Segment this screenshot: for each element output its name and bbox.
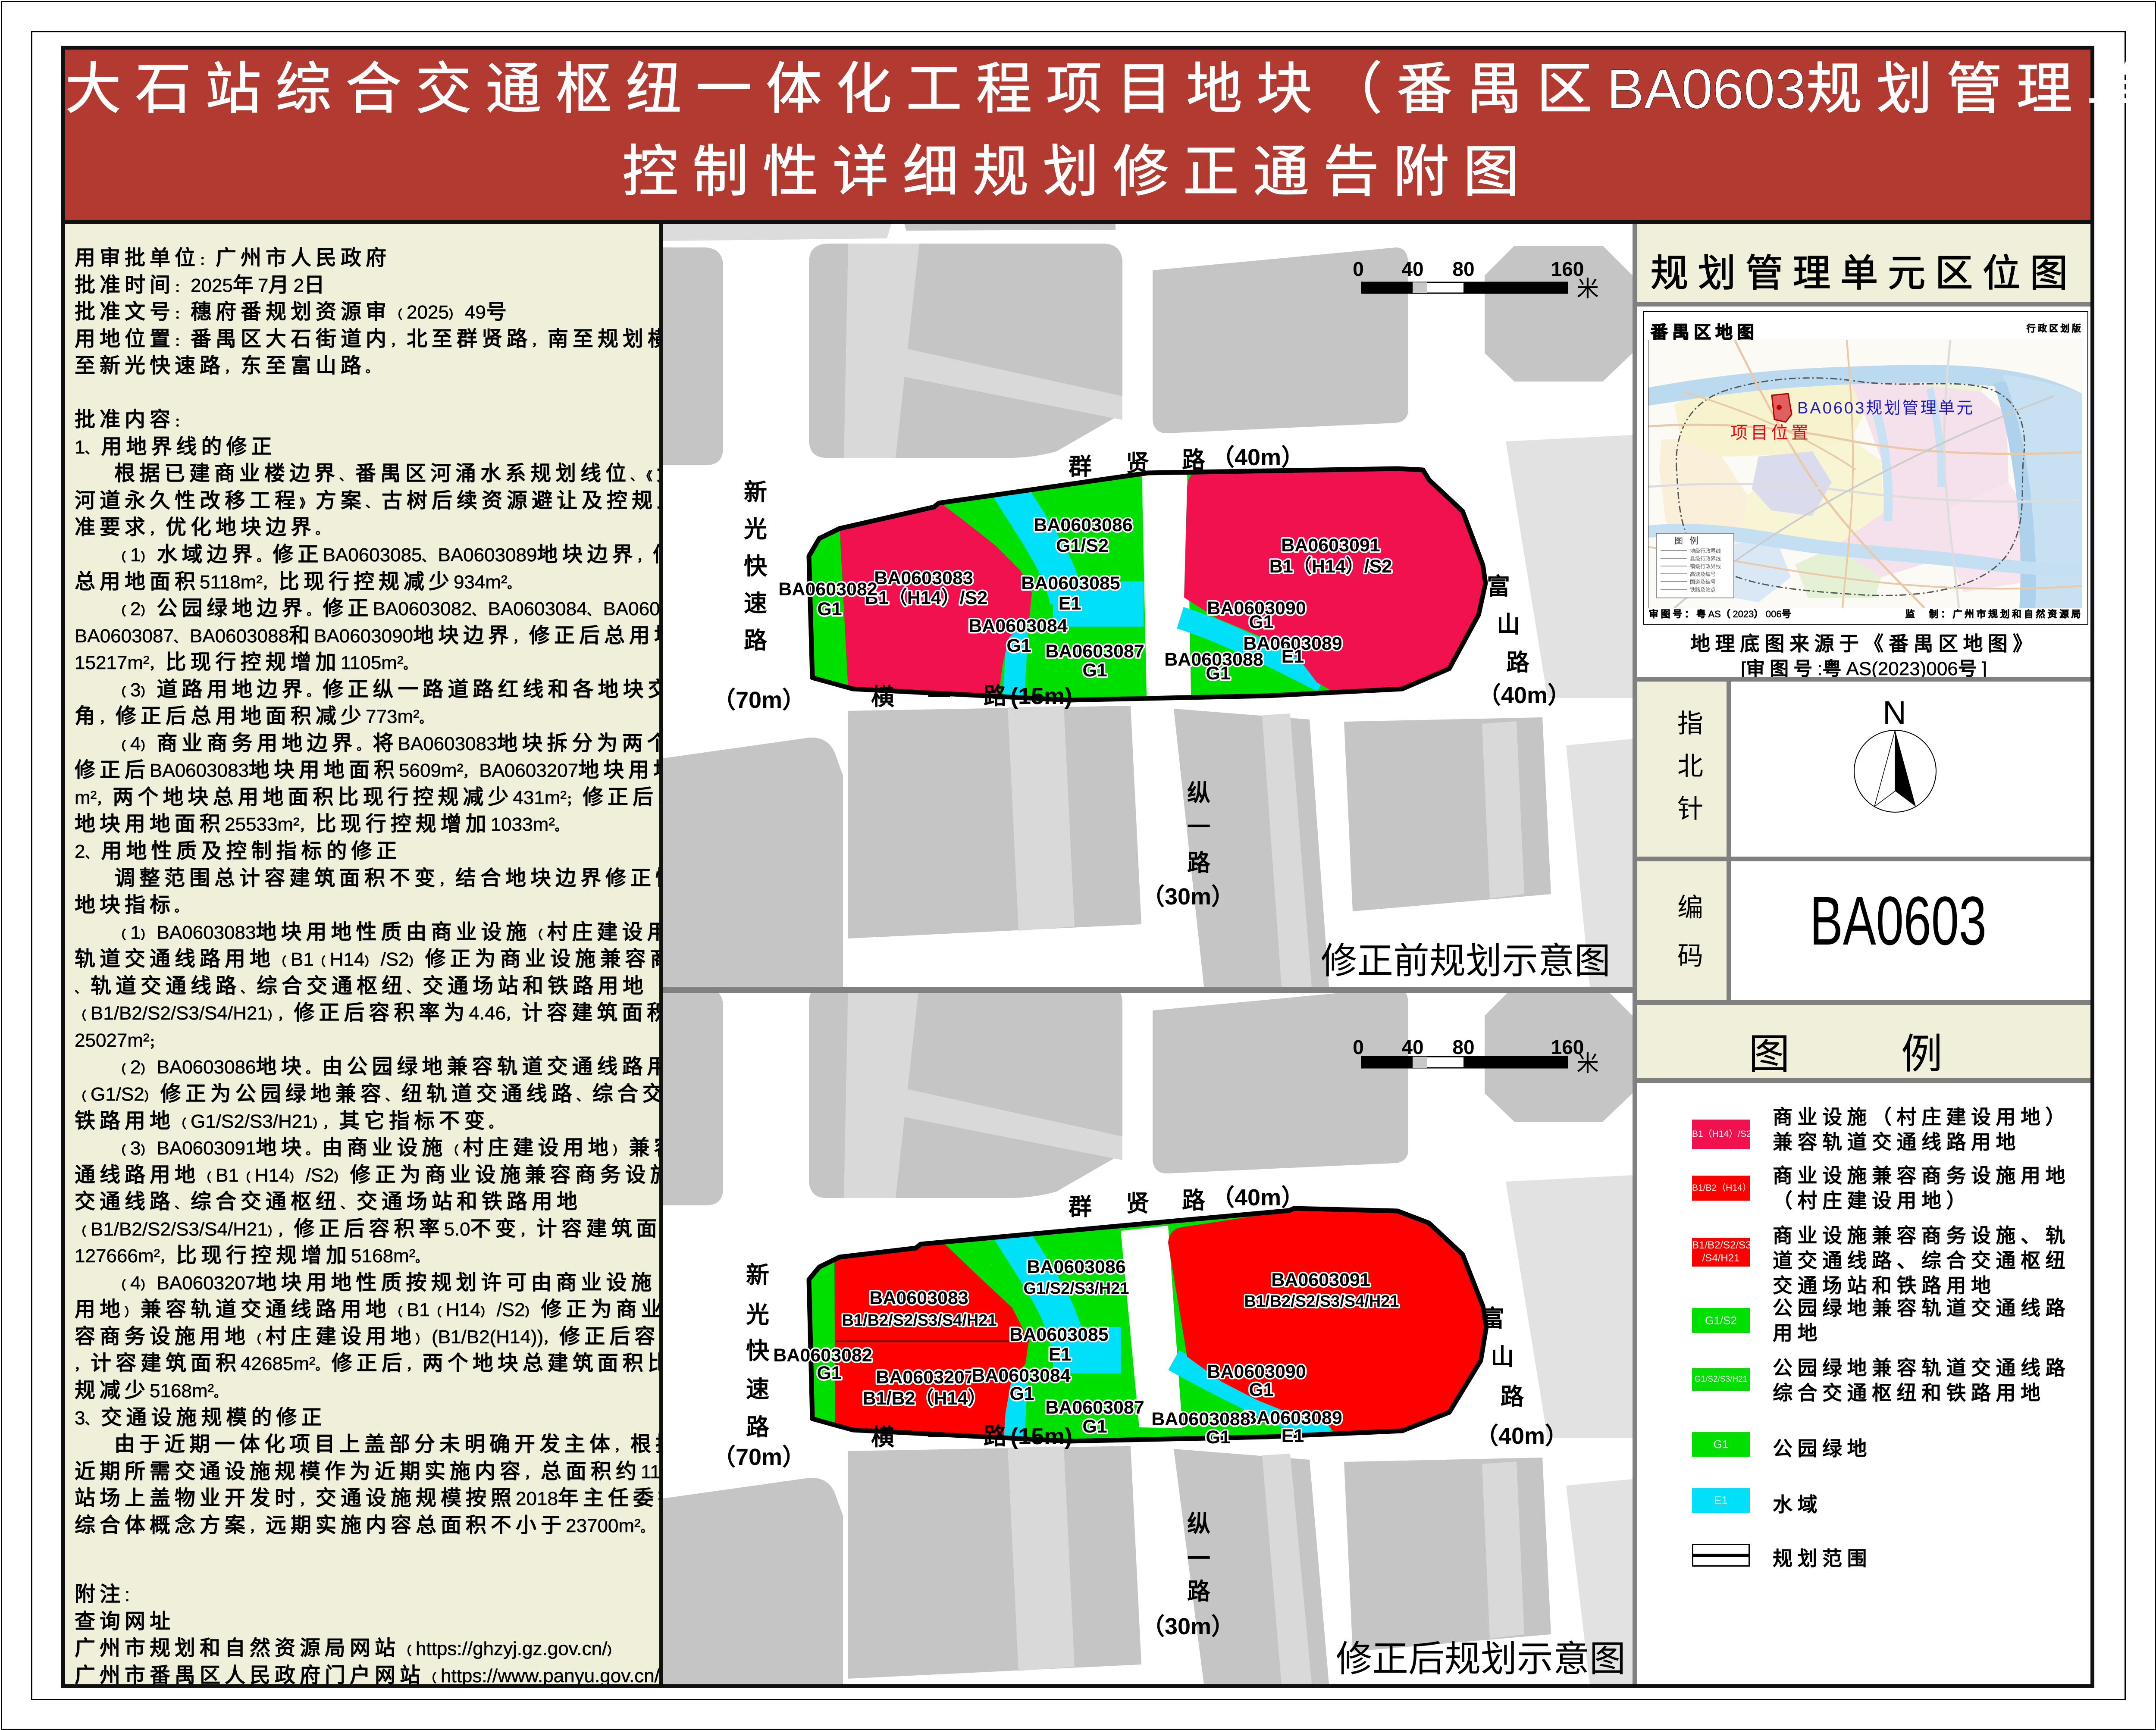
svg-text:BA0603091: BA0603091 — [1281, 535, 1380, 556]
svg-text:（40m）: （40m） — [1475, 1423, 1568, 1449]
svg-text:路: 路 — [744, 628, 768, 654]
svg-text:路: 路 — [746, 1414, 770, 1440]
svg-text:G1: G1 — [1009, 1383, 1034, 1404]
svg-text:路: 路 — [1501, 1384, 1524, 1410]
svg-text:（30m）: （30m） — [1141, 884, 1235, 910]
svg-text:(15m): (15m) — [1010, 683, 1072, 709]
svg-text:E1: E1 — [1282, 1426, 1304, 1446]
svg-text:修正前规划示意图: 修正前规划示意图 — [1321, 941, 1611, 981]
svg-text:一: 一 — [1187, 1546, 1210, 1572]
svg-text:群: 群 — [1069, 454, 1092, 480]
svg-text:80: 80 — [1452, 258, 1474, 280]
svg-text:横: 横 — [871, 1424, 894, 1450]
svg-text:速: 速 — [746, 1376, 769, 1402]
svg-text:贤: 贤 — [1126, 450, 1149, 476]
svg-text:横: 横 — [871, 684, 894, 710]
svg-text:新: 新 — [746, 1262, 769, 1288]
svg-text:BA0603084: BA0603084 — [971, 1365, 1071, 1386]
svg-text:N: N — [1883, 695, 1906, 731]
svg-text:一: 一 — [1187, 814, 1210, 840]
svg-text:光: 光 — [746, 1302, 769, 1328]
svg-text:（40m）: （40m） — [1211, 1185, 1304, 1211]
svg-text:BA0603207: BA0603207 — [876, 1367, 975, 1388]
svg-text:BA0603082: BA0603082 — [778, 579, 877, 600]
svg-text:G1: G1 — [1206, 663, 1230, 684]
svg-text:路: 路 — [1187, 1579, 1211, 1605]
svg-text:BA0603085: BA0603085 — [1021, 573, 1120, 594]
svg-text:国道及编号: 国道及编号 — [1690, 579, 1716, 585]
svg-text:B1/B2/S2/S3/S4/H21: B1/B2/S2/S3/S4/H21 — [842, 1311, 997, 1330]
svg-text:新: 新 — [744, 479, 767, 505]
svg-text:路: 路 — [1506, 650, 1530, 676]
svg-text:路: 路 — [984, 683, 1007, 709]
svg-text:B1（H14）/S2: B1（H14）/S2 — [1269, 556, 1392, 577]
svg-text:BA0603083: BA0603083 — [874, 568, 973, 588]
svg-text:光: 光 — [744, 516, 767, 542]
svg-text:G1/S2/S3/H21: G1/S2/S3/H21 — [1023, 1280, 1129, 1298]
svg-text:B1/B2（H14）: B1/B2（H14） — [863, 1388, 987, 1409]
svg-text:路: 路 — [1182, 447, 1206, 473]
svg-text:0: 0 — [1353, 1036, 1364, 1058]
svg-text:G1: G1 — [817, 1363, 841, 1383]
svg-text:高速及编号: 高速及编号 — [1690, 571, 1716, 577]
svg-text:路: 路 — [1187, 850, 1211, 876]
svg-text:BA0603090: BA0603090 — [1207, 1361, 1306, 1382]
svg-text:B1（H14）/S2: B1（H14）/S2 — [865, 588, 987, 608]
svg-text:BA0603086: BA0603086 — [1034, 515, 1133, 535]
svg-text:（70m）: （70m） — [712, 687, 805, 713]
svg-text:地级行政界线: 地级行政界线 — [1690, 548, 1721, 554]
svg-text:BA0603规划管理单元: BA0603规划管理单元 — [1797, 399, 1974, 417]
svg-text:路: 路 — [984, 1423, 1007, 1449]
svg-text:快: 快 — [744, 554, 768, 579]
svg-text:BA0603084: BA0603084 — [968, 616, 1068, 636]
svg-text:BA0603091: BA0603091 — [1271, 1270, 1370, 1290]
svg-text:纵: 纵 — [1187, 780, 1210, 806]
svg-text:纵: 纵 — [1187, 1511, 1210, 1537]
svg-text:镇级行政界线: 镇级行政界线 — [1690, 563, 1721, 569]
svg-text:富: 富 — [1487, 574, 1510, 600]
svg-text:山: 山 — [1491, 1344, 1514, 1370]
svg-text:E1: E1 — [1049, 1344, 1072, 1365]
svg-text:E1: E1 — [1059, 593, 1081, 614]
svg-text:0: 0 — [1353, 258, 1364, 280]
svg-text:BA0603088: BA0603088 — [1151, 1409, 1250, 1430]
svg-text:BA0603085: BA0603085 — [1009, 1324, 1109, 1345]
svg-text:修正后规划示意图: 修正后规划示意图 — [1336, 1639, 1626, 1679]
svg-text:速: 速 — [744, 591, 767, 616]
svg-text:G1: G1 — [1249, 612, 1273, 632]
svg-text:（70m）: （70m） — [712, 1444, 805, 1470]
svg-text:一: 一 — [928, 684, 951, 710]
svg-text:40: 40 — [1401, 258, 1423, 280]
svg-text:米: 米 — [1576, 277, 1599, 302]
svg-text:县级行政界线: 县级行政界线 — [1690, 556, 1721, 562]
svg-text:群: 群 — [1069, 1194, 1092, 1220]
svg-text:贤: 贤 — [1126, 1191, 1149, 1217]
svg-text:G1: G1 — [1206, 1427, 1230, 1448]
svg-text:路: 路 — [1182, 1188, 1206, 1214]
svg-text:G1: G1 — [1082, 660, 1107, 681]
svg-text:（30m）: （30m） — [1141, 1614, 1235, 1639]
svg-text:G1/S2: G1/S2 — [1056, 535, 1109, 556]
svg-text:80: 80 — [1452, 1036, 1474, 1058]
svg-text:G1: G1 — [1249, 1380, 1273, 1400]
svg-text:B1/B2/S2/S3/S4/H21: B1/B2/S2/S3/S4/H21 — [1244, 1292, 1399, 1311]
svg-text:(15m): (15m) — [1010, 1423, 1072, 1449]
svg-text:项目位置: 项目位置 — [1730, 423, 1811, 442]
svg-text:E1: E1 — [1282, 646, 1304, 667]
svg-text:BA0603087: BA0603087 — [1045, 1397, 1144, 1418]
svg-text:G1: G1 — [1082, 1416, 1107, 1437]
svg-text:一: 一 — [928, 1424, 951, 1450]
svg-text:铁路及站点: 铁路及站点 — [1690, 586, 1716, 593]
svg-text:G1: G1 — [817, 599, 842, 619]
svg-text:BA0603083: BA0603083 — [869, 1288, 968, 1308]
svg-text:BA0603086: BA0603086 — [1027, 1257, 1126, 1277]
svg-text:山: 山 — [1497, 612, 1520, 638]
svg-text:BA0603087: BA0603087 — [1045, 641, 1144, 662]
svg-text:（40m）: （40m） — [1211, 444, 1304, 470]
svg-text:（40m）: （40m） — [1478, 682, 1571, 708]
svg-text:米: 米 — [1576, 1051, 1599, 1076]
svg-text:40: 40 — [1401, 1036, 1423, 1058]
svg-text:G1: G1 — [1006, 635, 1031, 656]
svg-text:富: 富 — [1481, 1306, 1504, 1332]
svg-text:快: 快 — [746, 1338, 770, 1364]
svg-text:图 例: 图 例 — [1674, 536, 1701, 546]
svg-text:BA0603089: BA0603089 — [1243, 1408, 1342, 1428]
